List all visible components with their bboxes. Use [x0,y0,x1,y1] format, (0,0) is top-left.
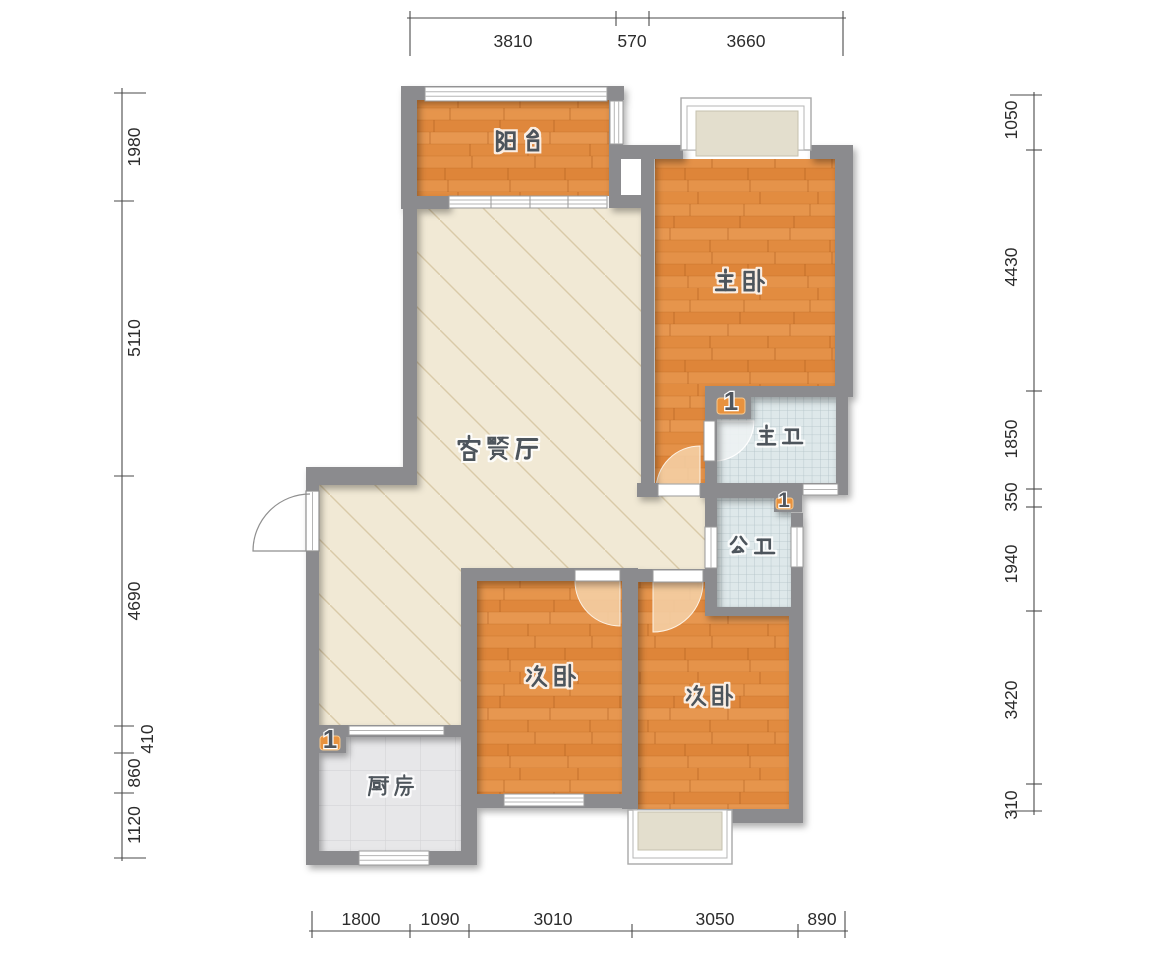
svg-text:4690: 4690 [124,581,144,620]
svg-text:570: 570 [617,31,646,51]
svg-text:1800: 1800 [342,909,381,929]
svg-text:860: 860 [124,758,144,787]
svg-text:1: 1 [323,724,337,754]
svg-text:1: 1 [778,489,790,512]
svg-text:3050: 3050 [696,909,735,929]
svg-text:1: 1 [724,386,738,416]
svg-text:5110: 5110 [124,319,144,357]
svg-text:310: 310 [1001,790,1021,819]
svg-text:1940: 1940 [1001,544,1021,583]
svg-text:3420: 3420 [1001,680,1021,719]
svg-text:4430: 4430 [1001,247,1021,286]
svg-text:3660: 3660 [727,31,766,51]
svg-text:1090: 1090 [421,909,460,929]
svg-text:1850: 1850 [1001,419,1021,458]
svg-text:1980: 1980 [124,127,144,166]
svg-text:350: 350 [1001,482,1021,511]
svg-text:890: 890 [807,909,836,929]
svg-text:1120: 1120 [124,806,144,844]
svg-text:410: 410 [137,724,157,753]
svg-text:1050: 1050 [1001,100,1021,139]
svg-text:3010: 3010 [534,909,573,929]
svg-text:3810: 3810 [494,31,533,51]
